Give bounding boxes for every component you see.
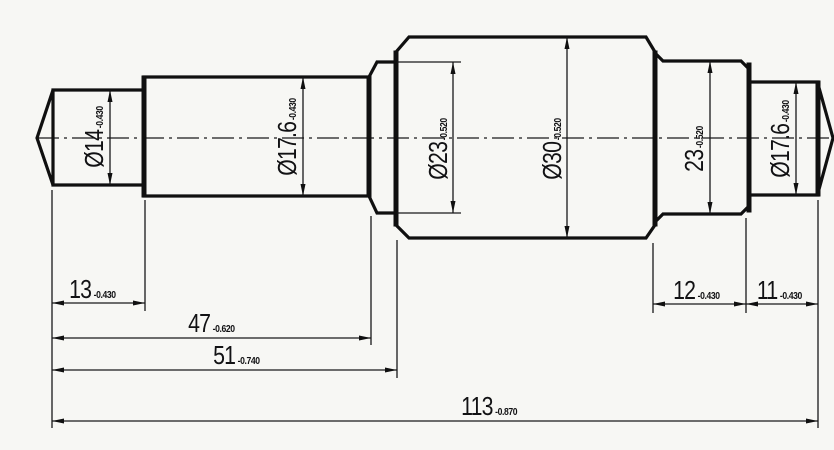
dim-label-51: 51 -0.740 bbox=[213, 342, 259, 368]
dim-tolerance: -0.430 bbox=[781, 100, 794, 122]
dim-label-11: 11 -0.430 bbox=[757, 277, 802, 303]
dim-value: Ø17.6 bbox=[767, 124, 793, 178]
dim-label-12: 12 -0.430 bbox=[673, 277, 719, 303]
dim-tolerance: -0.520 bbox=[553, 118, 566, 140]
dia-label-d30: Ø30 -0.520 bbox=[539, 118, 565, 179]
dim-label-47: 47 -0.620 bbox=[188, 310, 234, 336]
shaft-drawing-canvas: 13 -0.430 47 -0.620 51 -0.740 113 -0.870… bbox=[0, 0, 834, 450]
dim-value: 11 bbox=[757, 277, 778, 303]
dia-label-d17-6-left: Ø17.6 -0.430 bbox=[274, 98, 300, 176]
section-d17-6-left bbox=[144, 77, 369, 196]
dim-value: Ø17.6 bbox=[274, 122, 300, 176]
dim-tolerance: -0.520 bbox=[695, 126, 708, 148]
dim-value: 47 bbox=[188, 310, 210, 336]
dim-value: Ø23 bbox=[425, 142, 451, 180]
dimension-lines bbox=[52, 37, 818, 421]
dim-tolerance: -0.740 bbox=[238, 356, 260, 369]
dia-label-d17-6-right: Ø17.6 -0.430 bbox=[767, 100, 793, 178]
dim-label-113: 113 -0.870 bbox=[461, 393, 517, 419]
dim-tolerance: -0.620 bbox=[213, 324, 235, 337]
dim-tolerance: -0.430 bbox=[95, 106, 108, 128]
dim-tolerance: -0.430 bbox=[288, 98, 301, 120]
shaft-drawing bbox=[0, 0, 834, 450]
dia-label-d14: Ø14 -0.430 bbox=[81, 106, 107, 167]
dia-label-d23: Ø23 -0.520 bbox=[425, 118, 451, 179]
dim-tolerance: -0.430 bbox=[698, 291, 720, 304]
dim-value: 113 bbox=[461, 393, 493, 419]
dim-tolerance: -0.870 bbox=[495, 407, 517, 420]
dim-label-13: 13 -0.430 bbox=[69, 276, 115, 302]
extension-lines bbox=[52, 62, 818, 428]
dim-tolerance: -0.430 bbox=[780, 291, 802, 304]
dim-value: Ø30 bbox=[539, 142, 565, 180]
dim-value: Ø14 bbox=[81, 130, 107, 168]
dim-value: 51 bbox=[213, 342, 235, 368]
dim-tolerance: -0.430 bbox=[94, 290, 116, 303]
dia-label-23-right: 23 -0.520 bbox=[681, 126, 707, 172]
dim-value: 23 bbox=[681, 150, 707, 172]
dim-tolerance: -0.520 bbox=[439, 118, 452, 140]
dim-value: 12 bbox=[673, 277, 695, 303]
dim-value: 13 bbox=[69, 276, 91, 302]
